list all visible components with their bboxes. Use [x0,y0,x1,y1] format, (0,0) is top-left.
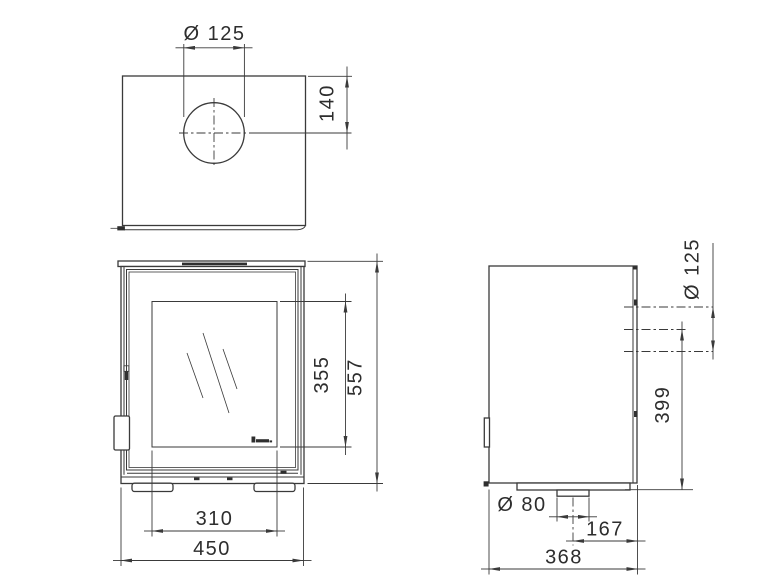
dim-side-flue-diameter: Ø 125 [682,238,714,359]
dim-label-air-inlet-diameter: Ø 80 [497,494,546,516]
dim-label-flue-diameter: Ø 125 [184,23,246,45]
top-view: Ø 125 140 [111,23,353,230]
side-body-outline [489,266,637,483]
base-tick [194,478,200,481]
logo-glyph [252,437,256,443]
dim-top-flue-offset: 140 [308,67,352,150]
latch-bolt [125,372,128,381]
dim-label-rear-flue-diameter: Ø 125 [682,238,704,300]
foot-left [132,483,173,491]
side-view: Ø 125 399 Ø 80 167 [481,238,713,574]
side-base-plate [517,483,630,490]
dim-label-flue-offset: 140 [317,84,339,122]
air-inlet-stub [557,490,589,496]
front-view: 355 557 310 450 [113,254,383,567]
dim-label-overall-height: 557 [345,358,367,396]
dim-side-air-inlet-diameter: Ø 80 [497,494,597,522]
side-front-foot-mark [484,481,489,486]
side-top-back-notch [633,267,638,270]
foot-right [254,483,295,491]
top-view-latch-mark [117,226,125,230]
side-back-tick [634,300,637,306]
dim-label-air-inlet-offset: 167 [586,519,624,541]
side-back-tick [634,411,637,417]
logo-glyph [256,439,269,442]
logo-glyph [270,440,273,442]
stove-drawing-svg: Ø 125 140 [0,0,783,587]
side-handle [484,418,489,447]
door-handle [114,416,130,450]
dim-label-glass-width: 310 [196,508,234,530]
dim-side-air-inlet-offset: 167 [566,519,646,542]
base-mark [281,471,287,474]
front-top-air-slot [182,263,247,266]
base-tick [227,478,233,481]
dim-label-overall-width: 450 [193,538,231,560]
technical-drawing-canvas: Ø 125 140 [0,0,783,587]
dim-label-glass-height: 355 [311,356,333,394]
dim-label-overall-depth: 368 [545,547,583,569]
dim-label-rear-flue-height: 399 [652,386,674,424]
top-view-bottom-lip [124,226,305,230]
